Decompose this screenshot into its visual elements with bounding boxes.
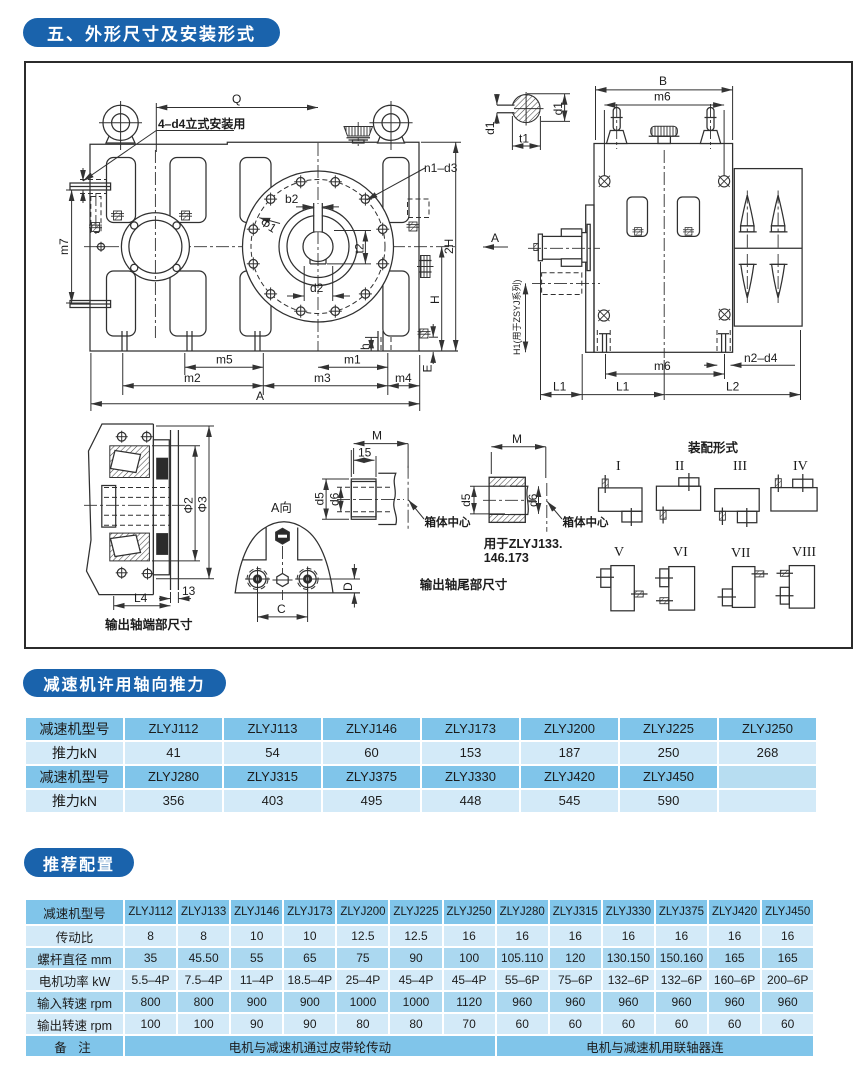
svg-text:L4: L4 — [134, 591, 148, 605]
svg-text:L1: L1 — [616, 379, 630, 393]
svg-text:B: B — [659, 74, 667, 88]
svg-text:15: 15 — [358, 446, 372, 460]
svg-text:IV: IV — [793, 459, 808, 474]
svg-text:146.173: 146.173 — [484, 551, 529, 565]
svg-text:VIII: VIII — [792, 545, 816, 560]
svg-text:Φ3: Φ3 — [196, 496, 210, 513]
svg-text:L2: L2 — [726, 379, 740, 393]
svg-text:输出轴尾部尺寸: 输出轴尾部尺寸 — [420, 577, 508, 592]
svg-text:n1–d3: n1–d3 — [424, 161, 458, 175]
svg-text:d5: d5 — [459, 493, 473, 507]
svg-text:输出轴端部尺寸: 输出轴端部尺寸 — [105, 617, 193, 632]
svg-text:Φ2: Φ2 — [182, 497, 196, 514]
svg-text:装配形式: 装配形式 — [687, 440, 739, 455]
svg-text:VI: VI — [673, 545, 688, 560]
svg-text:用于ZLYJ133.: 用于ZLYJ133. — [483, 537, 563, 551]
svg-text:III: III — [733, 459, 747, 474]
svg-text:4–d4立式安装用: 4–d4立式安装用 — [158, 116, 245, 131]
svg-text:m2: m2 — [184, 371, 201, 385]
svg-text:M: M — [372, 429, 382, 443]
svg-text:II: II — [675, 459, 685, 474]
svg-text:m5: m5 — [216, 352, 233, 366]
svg-text:箱体中心: 箱体中心 — [425, 515, 471, 529]
svg-text:C: C — [277, 602, 286, 616]
svg-text:H: H — [428, 295, 442, 304]
svg-text:D: D — [341, 582, 355, 591]
svg-text:VII: VII — [731, 546, 751, 561]
svg-text:L1: L1 — [553, 379, 567, 393]
svg-text:m7: m7 — [57, 238, 71, 255]
svg-text:t2: t2 — [353, 243, 367, 253]
svg-text:d2: d2 — [310, 281, 324, 295]
svg-text:m6: m6 — [654, 90, 671, 104]
svg-text:t1: t1 — [519, 132, 529, 146]
svg-text:m3: m3 — [314, 371, 331, 385]
svg-text:n2–d4: n2–d4 — [744, 351, 778, 365]
svg-text:H1(用于ZSYJ系列): H1(用于ZSYJ系列) — [511, 279, 522, 355]
svg-text:h: h — [358, 343, 372, 350]
svg-text:Q: Q — [232, 92, 241, 106]
svg-text:d1: d1 — [483, 121, 497, 135]
svg-text:2H: 2H — [442, 239, 456, 254]
svg-text:d6: d6 — [526, 493, 540, 507]
svg-text:b2: b2 — [285, 192, 299, 206]
svg-text:m6: m6 — [654, 359, 671, 373]
svg-text:I: I — [616, 459, 621, 474]
svg-text:d5: d5 — [313, 492, 327, 506]
svg-text:d6: d6 — [328, 492, 342, 506]
svg-text:A: A — [491, 231, 499, 245]
svg-text:13: 13 — [182, 584, 196, 598]
svg-text:A: A — [256, 389, 264, 403]
svg-text:A向: A向 — [271, 500, 292, 515]
svg-text:m4: m4 — [395, 371, 412, 385]
svg-text:箱体中心: 箱体中心 — [563, 515, 609, 529]
svg-text:M: M — [512, 432, 522, 446]
svg-text:d1: d1 — [551, 102, 565, 116]
svg-text:V: V — [614, 545, 624, 560]
svg-text:E: E — [421, 364, 435, 372]
svg-text:m1: m1 — [344, 352, 361, 366]
